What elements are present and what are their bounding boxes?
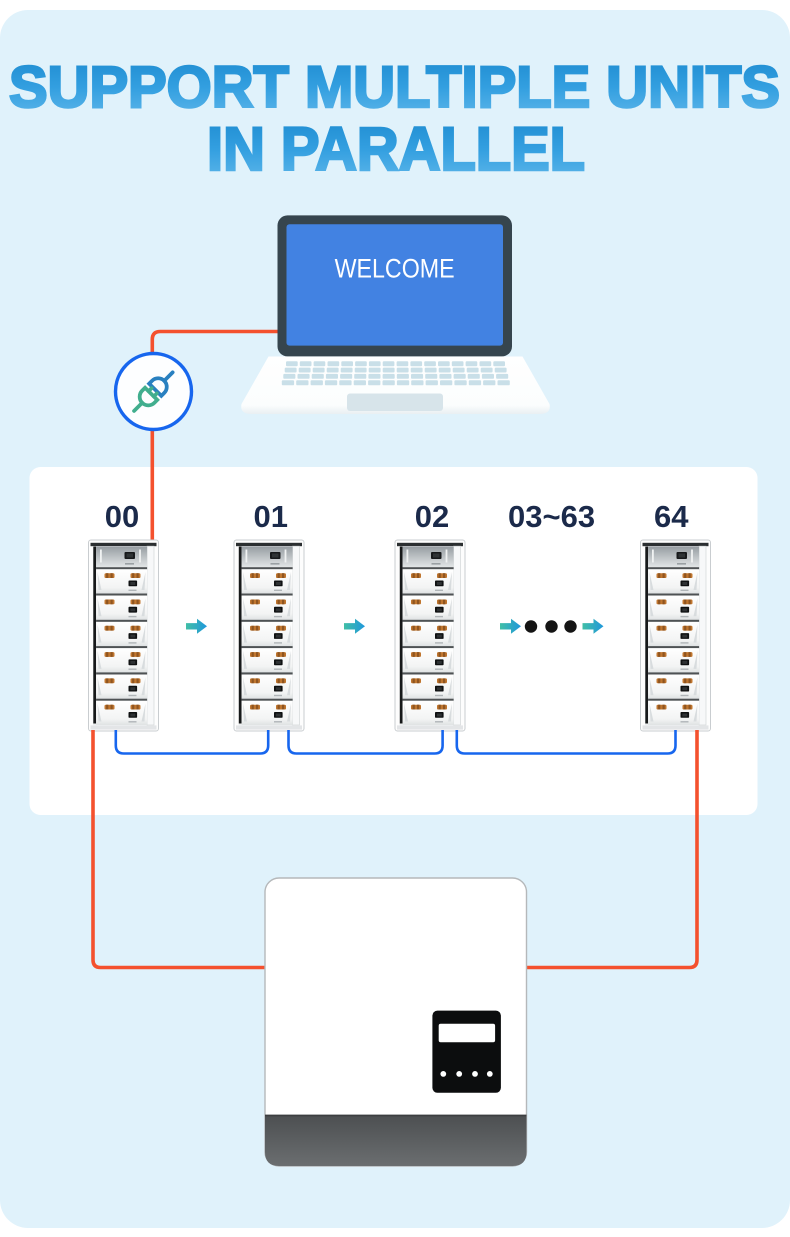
svg-text:00: 00: [105, 499, 139, 534]
svg-text:02: 02: [415, 499, 449, 534]
svg-text:IN PARALLEL: IN PARALLEL: [207, 115, 585, 183]
svg-text:WELCOME: WELCOME: [335, 254, 455, 284]
svg-text:03~63: 03~63: [508, 499, 595, 534]
svg-text:01: 01: [254, 499, 288, 534]
svg-text:64: 64: [654, 499, 689, 534]
svg-text:SUPPORT MULTIPLE UNITS: SUPPORT MULTIPLE UNITS: [9, 55, 780, 120]
